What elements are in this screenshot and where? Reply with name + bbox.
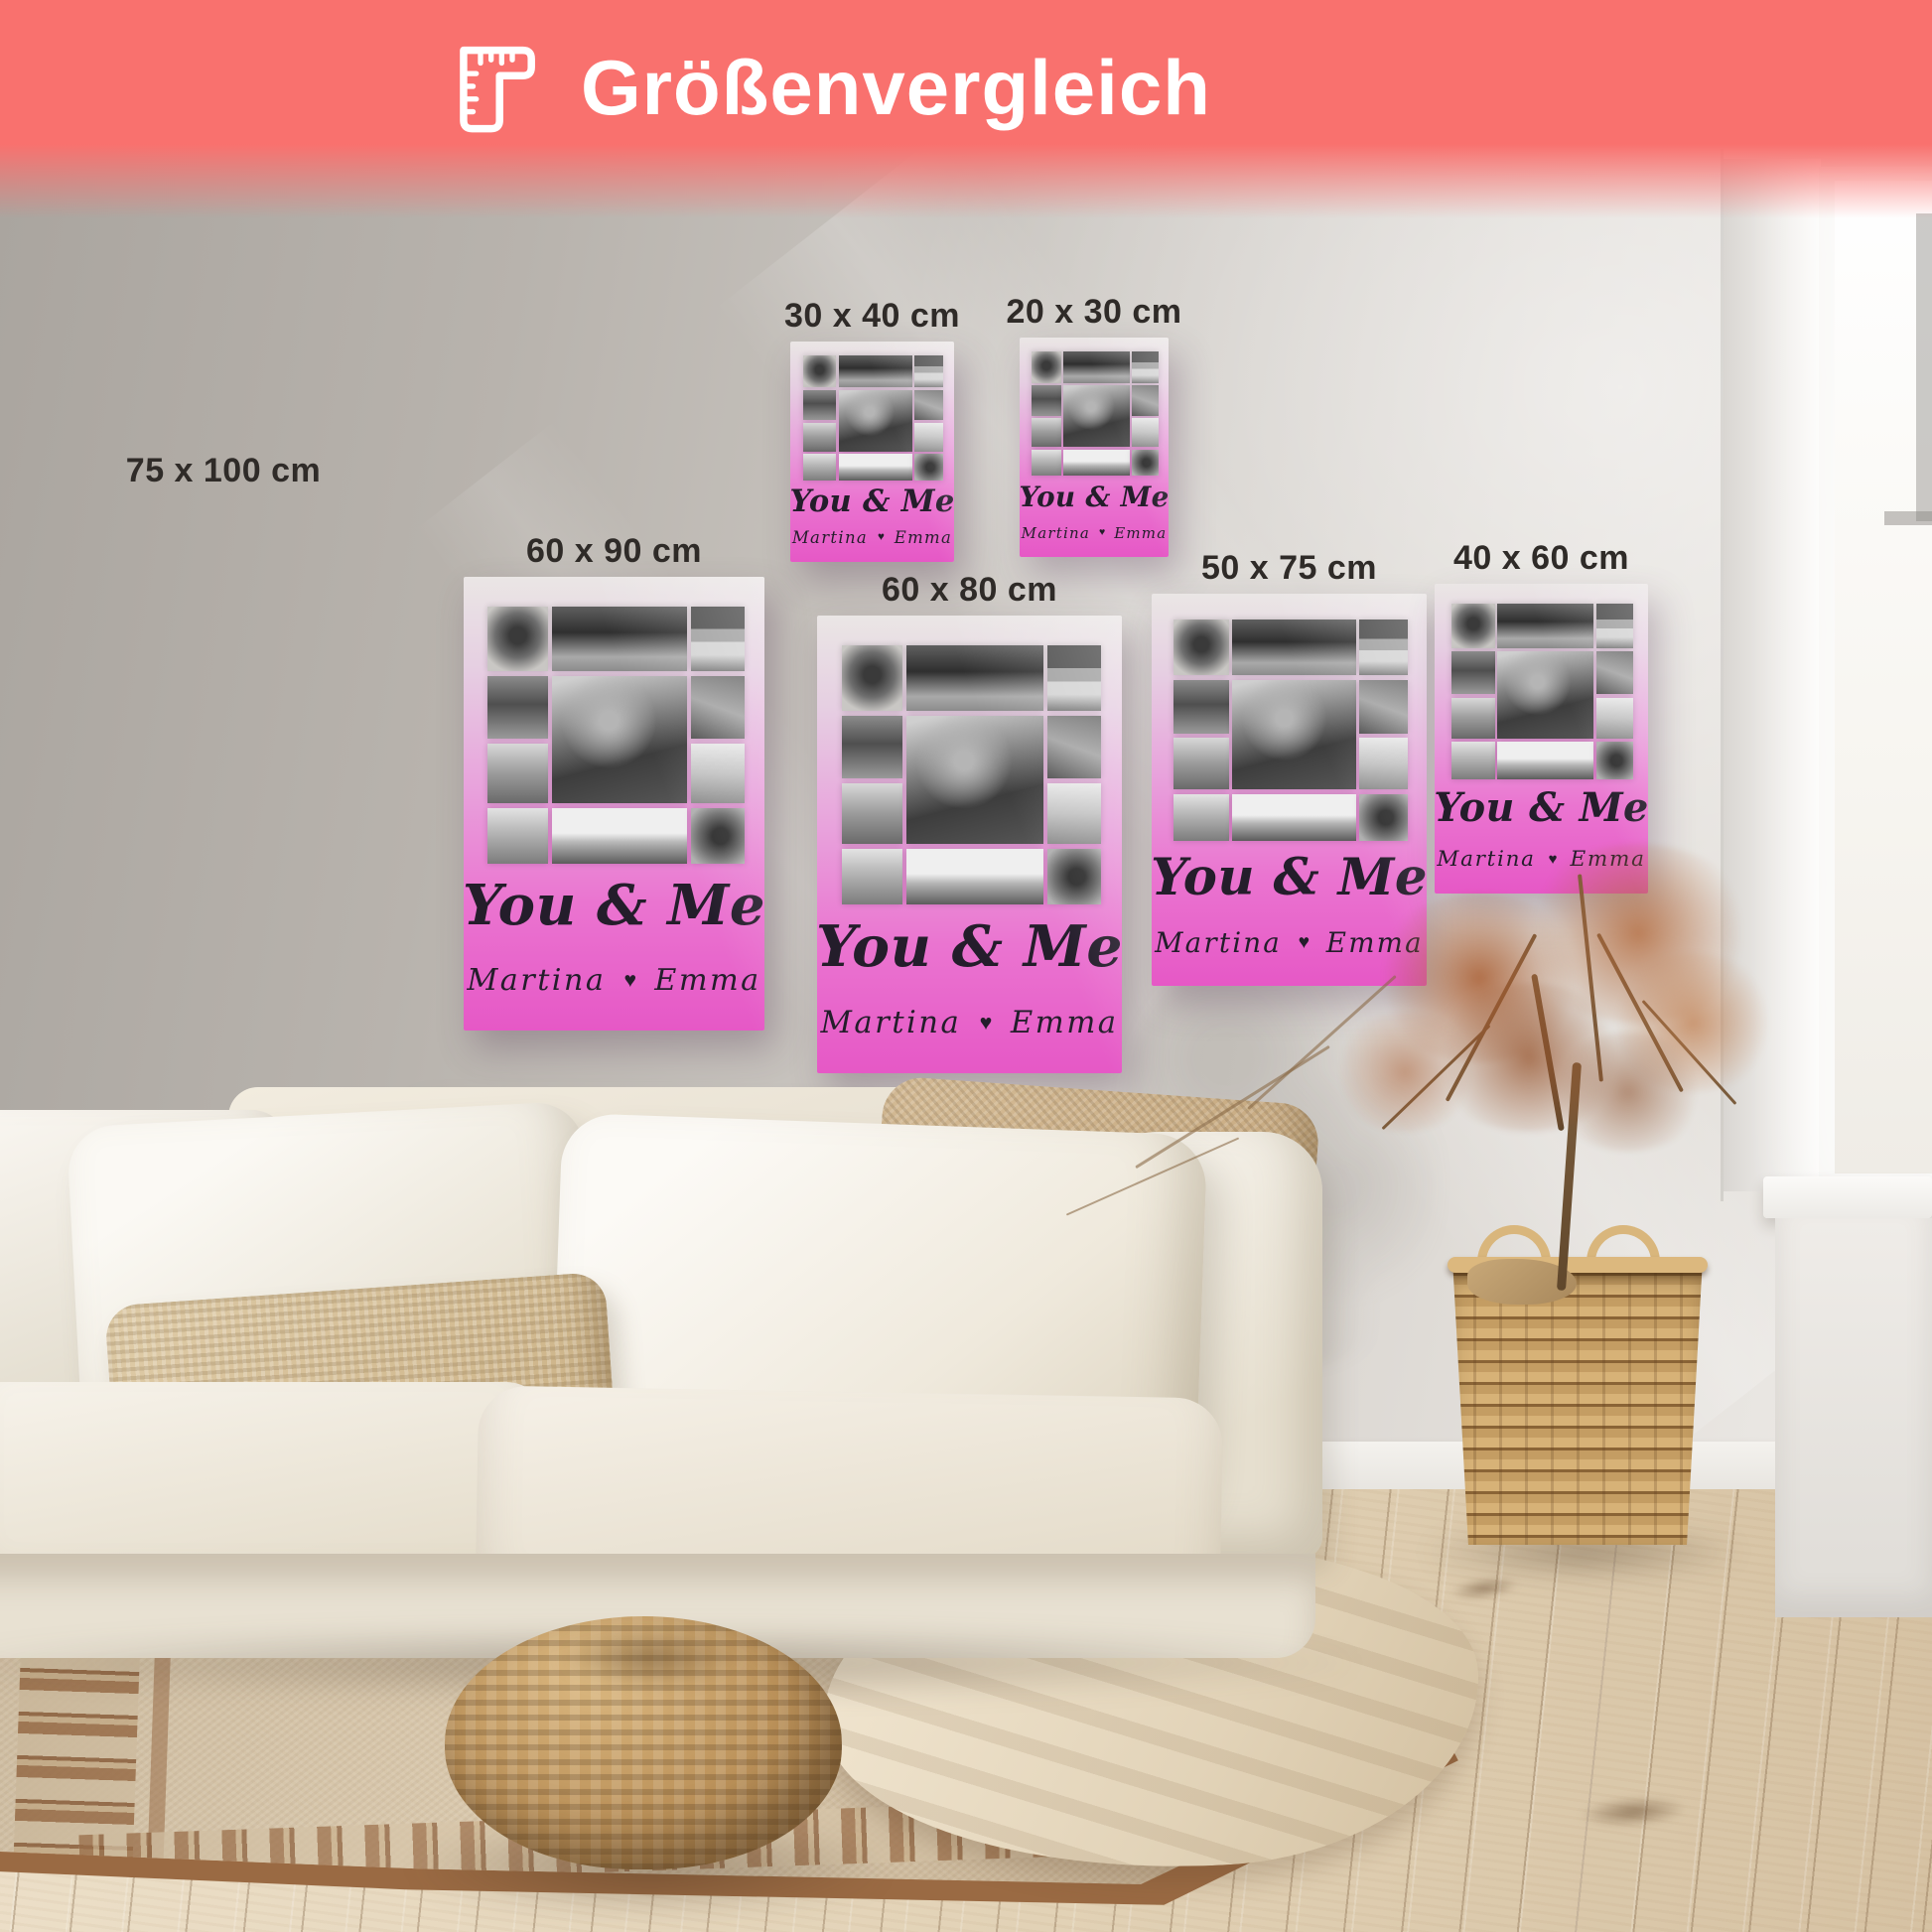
corner-ruler-icon — [449, 40, 544, 135]
pouf-top-dent — [556, 1628, 745, 1688]
rattan-basket — [1448, 1263, 1708, 1545]
dried-foliage — [1549, 1033, 1708, 1152]
dried-foliage — [1330, 1013, 1479, 1132]
page-title: Größenvergleich — [581, 40, 1211, 135]
product-size-comparison-image: 75 x 100 cm 30 x 40 cm — [0, 0, 1932, 1932]
